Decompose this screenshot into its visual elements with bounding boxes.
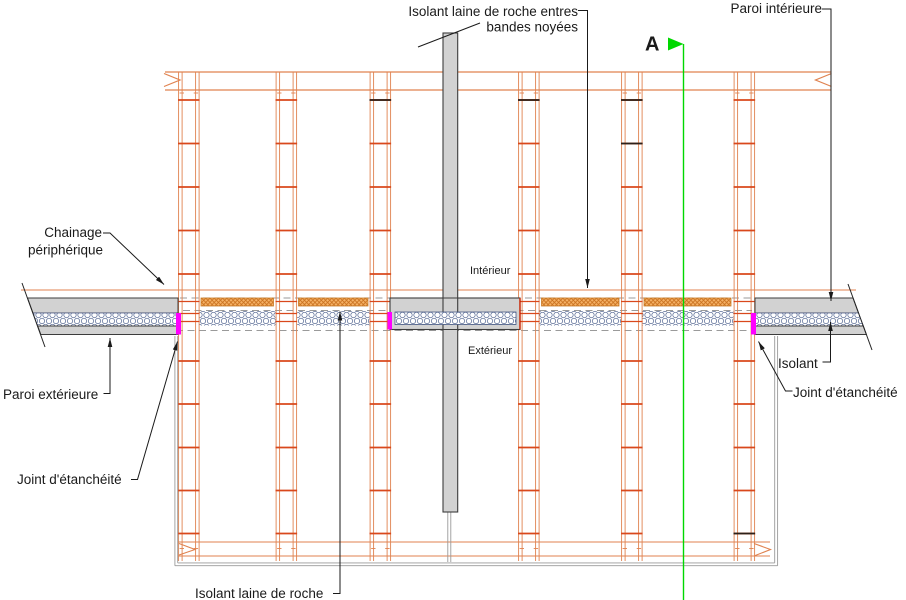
label-exterieur: Extérieur (468, 345, 512, 357)
label-joint-left: Joint d'étanchéité (17, 472, 122, 487)
label-insulation-top-2: bandes noyées (486, 20, 578, 35)
label-isolant: Isolant (778, 356, 818, 371)
label-chainage-1: Chainage (44, 225, 102, 240)
technical-drawing-canvas: A Isolant laine de roche entres bandes n… (0, 0, 906, 600)
label-interieur: Intérieur (470, 265, 511, 277)
label-insulation-bottom: Isolant laine de roche (195, 586, 323, 600)
right-wall-insulation (755, 313, 863, 326)
label-chainage-2: périphérique (28, 243, 103, 258)
left-wall-insulation (33, 313, 177, 326)
label-paroi-interieure: Paroi intérieure (730, 1, 822, 16)
joint-magenta-center (388, 312, 393, 330)
label-insulation-top-1: Isolant laine de roche entres (408, 4, 578, 19)
joint-magenta-right (751, 313, 756, 335)
label-paroi-exterieure: Paroi extérieure (3, 387, 98, 402)
label-joint-right: Joint d'étanchéité (793, 385, 898, 400)
floor-insulation-core (395, 312, 516, 325)
section-marker-label: A (645, 34, 659, 56)
partition-wall-bar (443, 33, 458, 512)
joint-magenta-left (176, 313, 181, 335)
wall-section-drawing: A Isolant laine de roche entres bandes n… (0, 0, 906, 600)
